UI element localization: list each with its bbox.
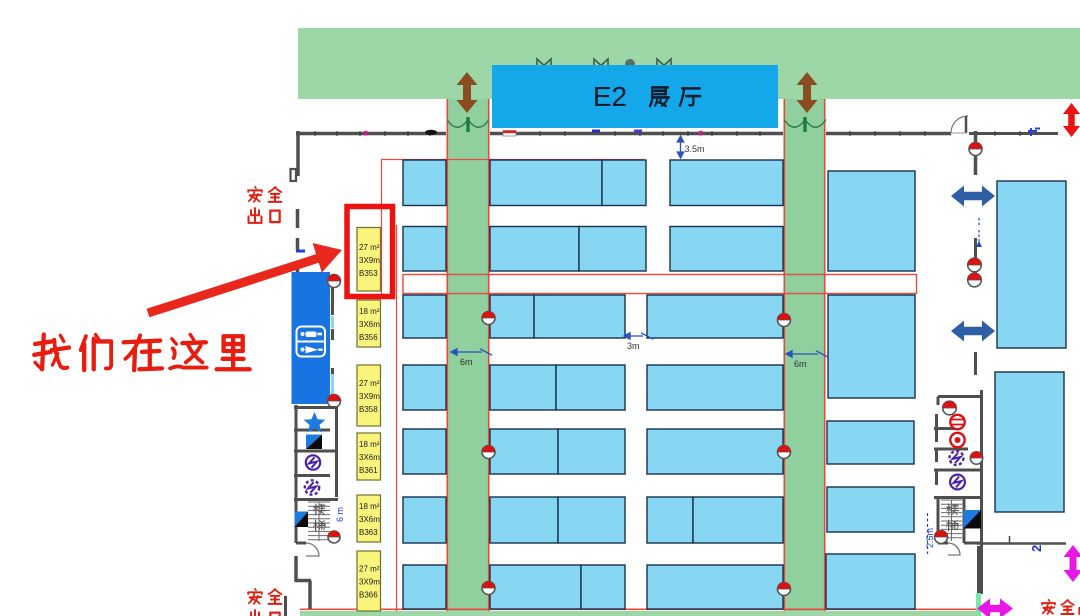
svg-text:B366: B366: [359, 591, 378, 600]
svg-text:2.5m: 2.5m: [925, 528, 935, 548]
svg-text:3X6m: 3X6m: [359, 453, 380, 462]
svg-text:3X6m: 3X6m: [359, 320, 380, 329]
svg-text:18 m²: 18 m²: [359, 440, 380, 449]
svg-text:3X9m: 3X9m: [359, 578, 380, 587]
svg-text:27 m²: 27 m²: [359, 243, 380, 252]
svg-text:18 m²: 18 m²: [359, 307, 380, 316]
svg-text:27 m²: 27 m²: [359, 379, 380, 388]
svg-text:E2: E2: [593, 81, 627, 112]
svg-text:B353: B353: [359, 269, 378, 278]
svg-text:3m: 3m: [627, 341, 640, 351]
svg-text:2: 2: [1029, 545, 1044, 552]
svg-text:B363: B363: [359, 528, 378, 537]
svg-text:3X9m: 3X9m: [359, 392, 380, 401]
svg-text:B361: B361: [359, 466, 378, 475]
svg-text:18 m²: 18 m²: [359, 502, 380, 511]
svg-text:B358: B358: [359, 405, 378, 414]
svg-text:3.5m: 3.5m: [685, 144, 705, 154]
svg-text:6 m: 6 m: [335, 507, 345, 522]
svg-text:6m: 6m: [794, 359, 807, 369]
svg-text:3X6m: 3X6m: [359, 515, 380, 524]
svg-text:3X9m: 3X9m: [359, 256, 380, 265]
svg-text:B356: B356: [359, 333, 378, 342]
svg-text:6m: 6m: [460, 357, 473, 367]
svg-text:27 m²: 27 m²: [359, 565, 380, 574]
